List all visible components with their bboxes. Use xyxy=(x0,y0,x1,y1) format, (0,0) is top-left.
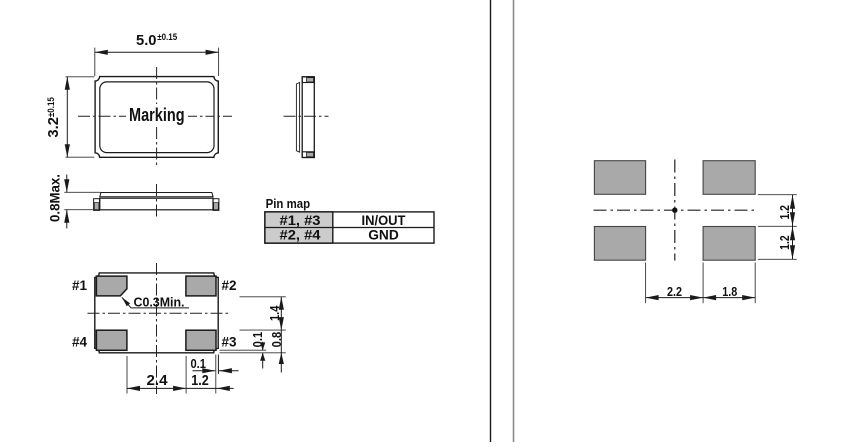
svg-text:#4: #4 xyxy=(72,333,87,349)
svg-text:#2: #2 xyxy=(222,277,237,293)
svg-text:2.4: 2.4 xyxy=(147,372,169,389)
svg-text:#3: #3 xyxy=(222,333,237,349)
svg-text:1.2: 1.2 xyxy=(778,235,792,250)
svg-text:Marking: Marking xyxy=(129,105,185,125)
svg-text:0.8Max.: 0.8Max. xyxy=(47,174,63,222)
svg-text:1.2: 1.2 xyxy=(778,205,792,220)
svg-text:0.1: 0.1 xyxy=(190,356,206,371)
svg-text:0.1: 0.1 xyxy=(250,332,265,348)
svg-text:0.8: 0.8 xyxy=(269,332,284,348)
svg-text:±0.15: ±0.15 xyxy=(157,32,178,43)
svg-text:IN/OUT: IN/OUT xyxy=(362,212,406,228)
svg-text:1.4: 1.4 xyxy=(267,305,282,321)
svg-text:5.0: 5.0 xyxy=(136,32,157,49)
svg-text:#2, #4: #2, #4 xyxy=(280,227,321,243)
svg-text:C0.3Min.: C0.3Min. xyxy=(134,296,185,310)
svg-text:1.8: 1.8 xyxy=(722,284,737,299)
svg-text:#1: #1 xyxy=(72,277,87,293)
svg-text:1.2: 1.2 xyxy=(191,372,209,389)
svg-text:2.2: 2.2 xyxy=(667,284,682,299)
svg-text:Pin map: Pin map xyxy=(266,197,311,211)
svg-text:GND: GND xyxy=(368,227,399,243)
svg-text:#1, #3: #1, #3 xyxy=(280,212,321,228)
